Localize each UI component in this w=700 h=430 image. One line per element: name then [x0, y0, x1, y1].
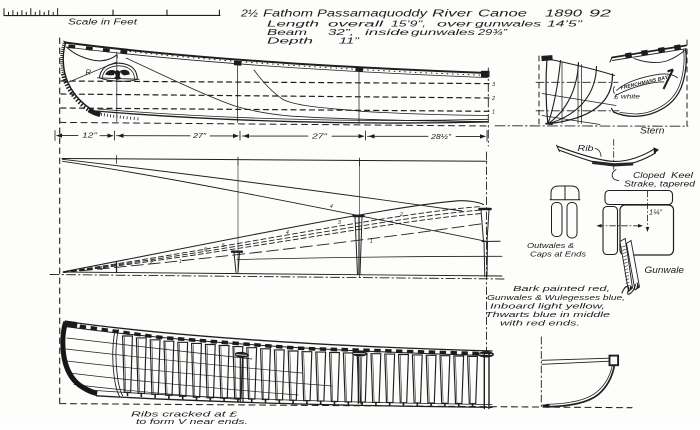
svg-text:27”: 27” [311, 131, 328, 140]
svg-text:28½”: 28½” [430, 132, 452, 141]
svg-text:1: 1 [370, 239, 373, 245]
svg-text:5: 5 [222, 243, 225, 249]
svg-text:1: 1 [179, 259, 182, 265]
svg-text:27”: 27” [192, 131, 207, 140]
svg-text:12”: 12” [82, 131, 98, 140]
svg-text:to form V near ends.: to form V near ends. [136, 417, 248, 425]
svg-text:Scale in Feet: Scale in Feet [68, 17, 138, 27]
svg-text:£ white: £ white [613, 94, 641, 101]
svg-text:1: 1 [492, 109, 495, 115]
svg-text:4: 4 [286, 230, 289, 236]
svg-text:2: 2 [491, 96, 495, 102]
svg-text:Bark painted red,: Bark painted red, [513, 284, 610, 293]
svg-text:1: 1 [100, 266, 103, 272]
svg-text:4: 4 [330, 204, 333, 210]
svg-text:Rib: Rib [578, 144, 595, 153]
svg-text:Gunwale: Gunwale [645, 265, 685, 275]
svg-text:6: 6 [204, 247, 207, 253]
svg-text:2: 2 [399, 212, 403, 218]
svg-text:2: 2 [149, 260, 153, 266]
svg-text:2½FathomPassamaquoddyRiverCano: 2½FathomPassamaquoddyRiverCanoe189092 [240, 9, 612, 20]
svg-text:3: 3 [338, 220, 341, 226]
svg-text:Caps at Ends: Caps at Ends [530, 250, 586, 259]
svg-text:Strake, tapered: Strake, tapered [624, 180, 696, 189]
svg-text:Stern: Stern [640, 126, 665, 136]
svg-text:1¼”: 1¼” [649, 208, 662, 217]
svg-text:with red ends.: with red ends. [500, 318, 580, 327]
svg-text:R: R [86, 68, 92, 77]
